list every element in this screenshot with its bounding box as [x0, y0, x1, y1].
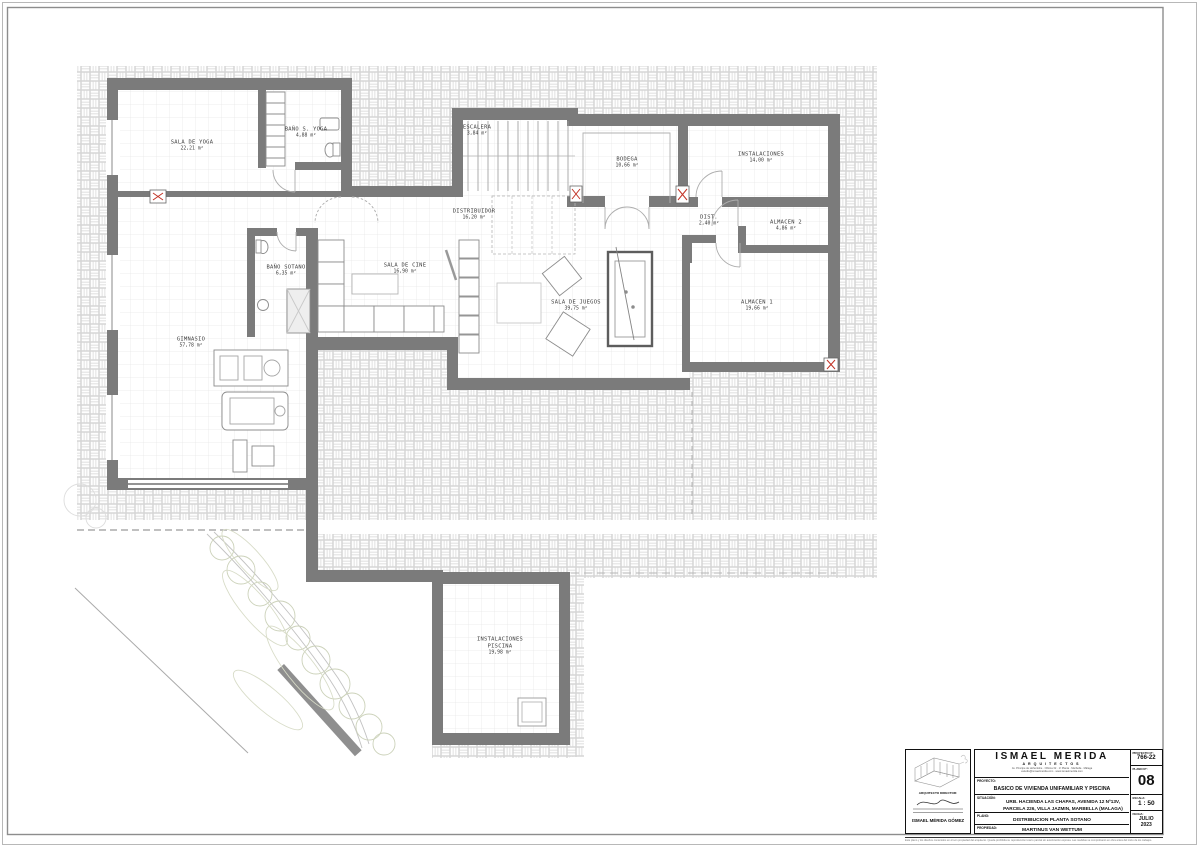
fecha-year: 2023 — [1131, 822, 1163, 828]
field-plano: PLANO: DISTRIBUCION PLANTA SOTANO — [975, 813, 1129, 825]
drawing-sheet: SALA DE YOGA22,21 m² BAÑO S. YOGA4,88 m²… — [0, 0, 1200, 848]
title-block-main-column: ISMAEL MERIDA ARQUITECTOS Av. Principe d… — [975, 750, 1129, 833]
plano-no-label: PLANO Nº: — [1131, 766, 1163, 771]
field-situacion: SITUACIÓN: URB. HACIENDA LAS CHAPAS, AVE… — [975, 795, 1129, 813]
architect-name: ISMAEL MÉRIDA GÓMEZ — [912, 818, 964, 823]
propiedad-label: PROPIEDAD: — [977, 826, 997, 830]
title-block-architect-panel: ARQUITECTO DIRECTOR: ISMAEL MÉRIDA GÓMEZ — [905, 749, 971, 834]
firm-header: ISMAEL MERIDA ARQUITECTOS Av. Principe d… — [975, 751, 1129, 778]
firm-address-line2: estudio@ismaelmerida.com · www.ismaelmer… — [975, 770, 1129, 773]
meta-plano-no: PLANO Nº: 08 — [1131, 766, 1163, 795]
title-block-meta-column: PROYECTO Nº: 766-22 PLANO Nº: 08 ESCALA:… — [1130, 750, 1163, 833]
signature — [909, 795, 967, 817]
house-sketch — [907, 750, 969, 790]
floor-plan-svg — [0, 0, 1200, 848]
firm-name: ISMAEL MERIDA — [975, 751, 1129, 762]
field-proyecto: PROYECTO: BASICO DE VIVIENDA UNIFAMILIAR… — [975, 778, 1129, 795]
proyecto-label: PROYECTO: — [977, 779, 996, 783]
field-propiedad: PROPIEDAD: MARTINUS VAN WETTUM — [975, 825, 1129, 835]
firm-subtitle: ARQUITECTOS — [975, 762, 1129, 766]
plano-value: DISTRIBUCION PLANTA SOTANO — [975, 813, 1129, 823]
plano-no-value: 08 — [1131, 772, 1163, 789]
situacion-line1: URB. HACIENDA LAS CHAPAS, AVENIDA 12 Nº1… — [999, 798, 1127, 805]
situacion-label: SITUACIÓN: — [977, 796, 996, 800]
proyecto-value: BASICO DE VIVIENDA UNIFAMILIAR Y PISCINA — [975, 778, 1129, 792]
proyecto-no-value: 766-22 — [1131, 755, 1163, 761]
plano-label: PLANO: — [977, 814, 989, 818]
situacion-line2: PARCELA 226, VILLA JAZMIN, MARBELLA (MAL… — [999, 805, 1127, 812]
propiedad-value: MARTINUS VAN WETTUM — [975, 825, 1129, 834]
title-block: ARQUITECTO DIRECTOR: ISMAEL MÉRIDA GÓMEZ… — [905, 748, 1163, 835]
meta-escala: ESCALA: 1 : 50 — [1131, 795, 1163, 811]
section-gap-band — [70, 520, 880, 534]
disclaimer-line: Este plano y los diseños contenidos en é… — [905, 837, 1163, 842]
title-block-fields-panel: ISMAEL MERIDA ARQUITECTOS Av. Principe d… — [974, 749, 1163, 834]
meta-proyecto-no: PROYECTO Nº: 766-22 — [1131, 750, 1163, 766]
meta-fecha: FECHA: JULIO 2023 — [1131, 811, 1163, 831]
escala-value: 1 : 50 — [1131, 800, 1163, 807]
